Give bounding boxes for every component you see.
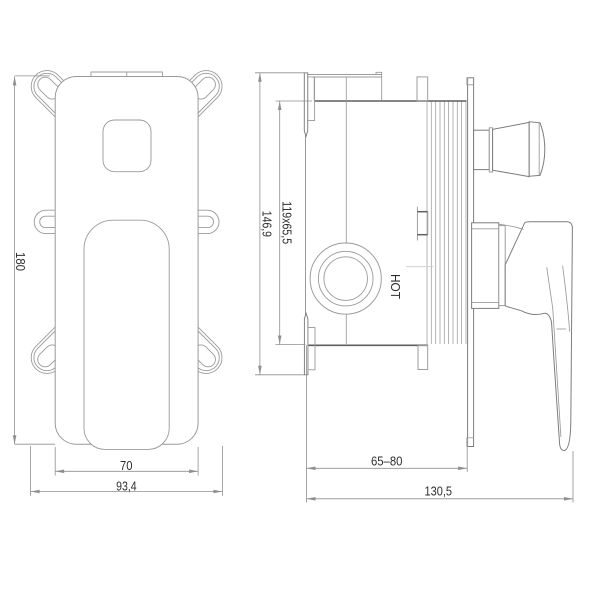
svg-text:180: 180 [13, 252, 28, 271]
svg-text:130,5: 130,5 [425, 484, 453, 499]
svg-text:93,4: 93,4 [116, 479, 137, 494]
svg-text:HOT: HOT [388, 274, 403, 299]
svg-text:146,9: 146,9 [259, 211, 274, 237]
svg-text:65–80: 65–80 [371, 453, 403, 468]
svg-text:70: 70 [120, 458, 133, 473]
svg-text:119x65,5: 119x65,5 [279, 201, 294, 244]
